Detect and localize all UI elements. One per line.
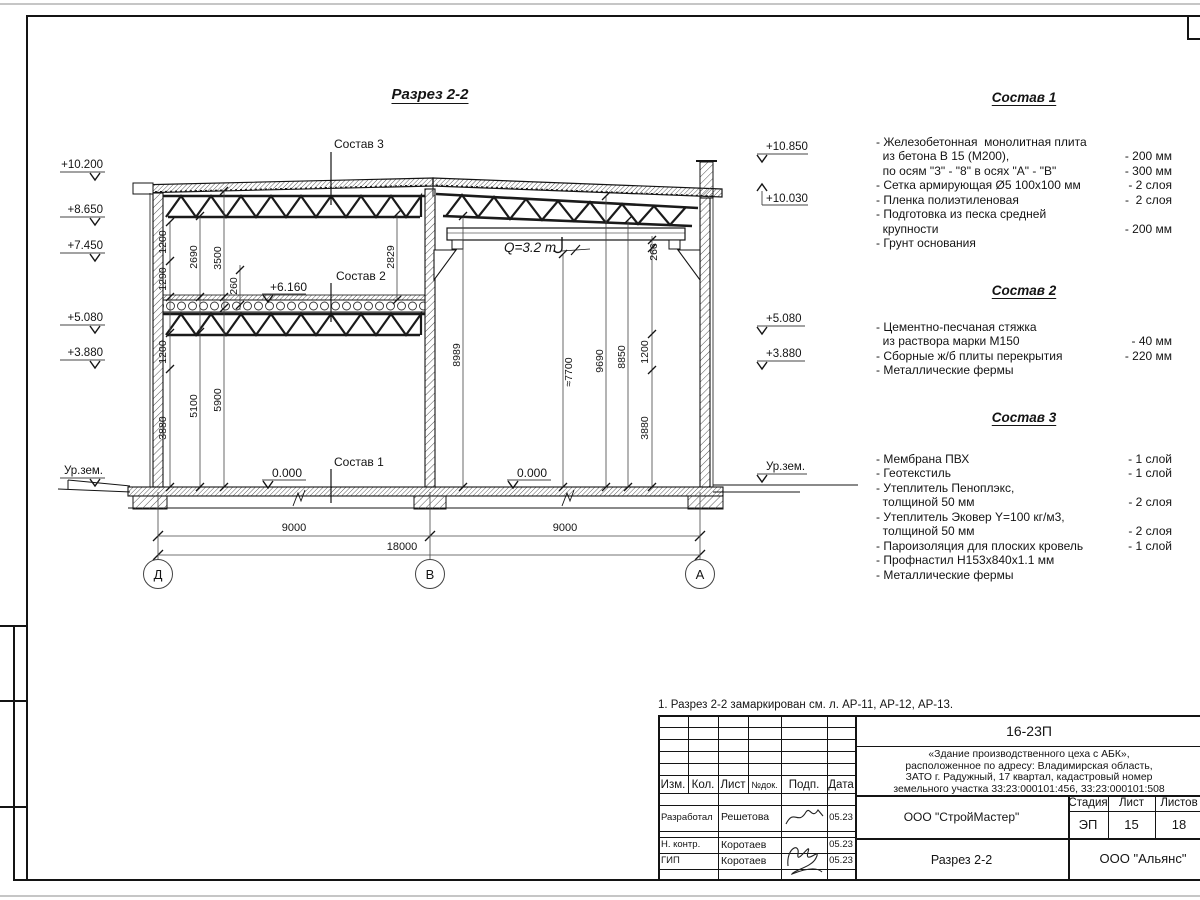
sheet-value: 15 (1108, 812, 1155, 838)
spec-item: - Металлические фермы (876, 568, 1172, 582)
spec-row: - Железобетонная монолитная плита (876, 135, 1172, 149)
spec-row: - Цементно-песчаная стяжка (876, 320, 1172, 334)
elev-left-0: +10.200 (61, 159, 103, 171)
project-description: «Здание производственного цеха с АБК», р… (858, 749, 1200, 795)
spec-row: толщиной 50 мм- 2 слоя (876, 495, 1172, 509)
spec-row: - Утеплитель Эковер Y=100 кг/м3, (876, 510, 1172, 524)
spec-qty: - 200 мм (1125, 149, 1172, 163)
spec-row: - Грунт основания (876, 236, 1172, 250)
axis-label-d: Д (154, 567, 163, 582)
dim-rb-3880: 3880 (639, 416, 651, 440)
dim-bottom-texts: 9000 9000 18000 (282, 522, 577, 553)
elev-right-2: +5.080 (766, 313, 802, 325)
spec-row: - Пленка полиэтиленовая- 2 слоя (876, 193, 1172, 207)
spec-qty: - 300 мм (1125, 164, 1172, 178)
dim-lb-1200-low: 1200 (157, 340, 169, 364)
spec-panel-3: Состав 3 - Мембрана ПВХ- 1 слой - Геотек… (876, 410, 1172, 582)
spec-row: - Металлические фермы (876, 568, 1172, 582)
dim-lb-3880: 3880 (157, 416, 169, 440)
customer-org: ООО "Альянс" (1068, 840, 1200, 879)
dim-lb-2829: 2829 (385, 245, 397, 269)
spec-item: - Геотекстиль (876, 466, 1128, 480)
dim-lb-5100: 5100 (188, 394, 200, 418)
dim-total: 18000 (387, 541, 418, 553)
spec-row: - Металлические фермы (876, 363, 1172, 377)
spec-qty: - 200 мм (1125, 222, 1172, 236)
crane-beam (434, 228, 700, 280)
title-block: Изм. Кол. Лист №док. Подп. Дата Разработ… (658, 715, 1200, 881)
elevation-marks-right: +10.850 +10.030 +5.080 +3.880 Ур.зем. (757, 141, 808, 482)
spec-qty: - 2 слоя (1128, 495, 1172, 509)
col-list: Лист (718, 777, 748, 793)
axis-label-v: В (426, 567, 435, 582)
spec-item: - Металлические фермы (876, 363, 1172, 377)
role-developer: Разработал (658, 806, 721, 830)
col-podp: Подп. (781, 777, 827, 793)
dim-lb-5900: 5900 (212, 388, 224, 412)
spec-qty: - 2 слоя (1125, 193, 1172, 207)
date-gip: 05.23 (827, 854, 855, 869)
col-data: Дата (827, 777, 855, 793)
spec-item: крупности (876, 222, 1125, 236)
elev-right-0: +10.850 (766, 141, 808, 153)
spec-row: - Подготовка из песка средней (876, 207, 1172, 221)
stage-value: ЭП (1068, 812, 1108, 838)
spec-qty: - 2 слоя (1128, 524, 1172, 538)
signature-ncontrol-gip (782, 836, 826, 878)
label-crane-capacity: Q=3.2 т (504, 240, 556, 255)
dim-rb-1200: 1200 (639, 340, 651, 364)
date-ncontrol: 05.23 (827, 838, 855, 853)
sheets-label: Листов (1155, 795, 1200, 811)
elev-left-1: +8.650 (68, 204, 104, 216)
spec-row: - Сетка армирующая Ø5 100х100 мм- 2 слоя (876, 178, 1172, 192)
spec-row: - Утеплитель Пеноплэкс, (876, 481, 1172, 495)
dim-span-left: 9000 (282, 522, 306, 534)
dim-rb-8989: 8989 (451, 343, 463, 367)
spec-item: - Мембрана ПВХ (876, 452, 1128, 466)
elev-right-1: +10.030 (766, 193, 808, 205)
spec-item: - Утеплитель Эковер Y=100 кг/м3, (876, 510, 1172, 524)
role-gip: ГИП (658, 854, 721, 869)
truss-right (436, 194, 698, 226)
spec-panel-2: Состав 2 - Цементно-песчаная стяжка из р… (876, 283, 1172, 378)
spec-item: - Сетка армирующая Ø5 100х100 мм (876, 178, 1128, 192)
spec-qty: - 220 мм (1125, 349, 1172, 363)
dim-rb-266: 266 (648, 243, 660, 261)
spec-item: из бетона В 15 (М200), (876, 149, 1125, 163)
spec-item: по осям "3" - "8" в осях "А" - "В" (876, 164, 1125, 178)
ground (58, 480, 858, 509)
project-line: земельного участка 33:23:000101:456, 33:… (858, 784, 1200, 796)
dim-lb-3500: 3500 (212, 246, 224, 270)
drawing-sheet: Разрез 2-2 (0, 0, 1200, 900)
project-line: ЗАТО г. Радужный, 17 квартал, кадастровы… (858, 772, 1200, 784)
spec-qty: - 1 слой (1128, 452, 1172, 466)
spec-item: толщиной 50 мм (876, 495, 1128, 509)
label-zero-left: 0.000 (272, 466, 302, 480)
name-ncontrol: Коротаев (718, 838, 784, 853)
spec-qty: - 1 слой (1128, 466, 1172, 480)
dim-rb-7700: ≈7700 (563, 357, 575, 386)
sheets-value: 18 (1155, 812, 1200, 838)
spec-row: - Профнастил Н153х840х1.1 мм (876, 553, 1172, 567)
dim-rb-9690: 9690 (594, 349, 606, 373)
spec-item: - Сборные ж/б плиты перекрытия (876, 349, 1125, 363)
spec-item: - Профнастил Н153х840х1.1 мм (876, 553, 1172, 567)
col-izm: Изм. (658, 777, 688, 793)
dim-lb-2690: 2690 (188, 245, 200, 269)
axis-bubbles: Д В А (144, 560, 715, 589)
name-developer: Решетова (718, 806, 784, 830)
spec-item: - Пароизоляция для плоских кровель (876, 539, 1128, 553)
spec-row: - Пароизоляция для плоских кровель- 1 сл… (876, 539, 1172, 553)
spec-item: толщиной 50 мм (876, 524, 1128, 538)
doc-number: 16-23П (855, 720, 1200, 744)
dim-lb-1200-top: 1200 (157, 230, 169, 254)
spec-item: - Пленка полиэтиленовая (876, 193, 1125, 207)
elevation-marks-left: +10.200 +8.650 +7.450 +5.080 +3.880 Ур.з… (60, 159, 105, 486)
elev-right-ground: Ур.зем. (766, 461, 805, 473)
sheet-note: 1. Разрез 2-2 замаркирован см. л. АР-11,… (658, 699, 953, 711)
design-org: ООО "СтройМастер" (855, 797, 1068, 838)
label-zero-right: 0.000 (517, 466, 547, 480)
stage-label: Стадия (1068, 795, 1108, 811)
label-sostav3: Состав 3 (334, 137, 384, 151)
spec-item: - Грунт основания (876, 236, 1172, 250)
role-ncontrol: Н. контр. (658, 838, 721, 853)
label-sostav2: Состав 2 (336, 269, 386, 283)
spec-row: из бетона В 15 (М200),- 200 мм (876, 149, 1172, 163)
drawing-name: Разрез 2-2 (855, 840, 1068, 879)
spec-item: - Утеплитель Пеноплэкс, (876, 481, 1172, 495)
date-developer: 05.23 (827, 806, 855, 830)
project-line: расположенное по адресу: Владимирская об… (858, 761, 1200, 773)
spec-item: из раствора марки М150 (876, 334, 1131, 348)
spec-panel-1: Состав 1 - Железобетонная монолитная пли… (876, 90, 1172, 251)
spec-row: из раствора марки М150- 40 мм (876, 334, 1172, 348)
elev-left-ground: Ур.зем. (64, 465, 103, 477)
dim-lb-1290: 1290 (157, 267, 169, 291)
elev-left-3: +5.080 (68, 312, 104, 324)
spec-1-title: Состав 1 (876, 90, 1172, 105)
col-kol: Кол. (688, 777, 718, 793)
spec-row: по осям "3" - "8" в осях "А" - "В"- 300 … (876, 164, 1172, 178)
spec-row: - Геотекстиль- 1 слой (876, 466, 1172, 480)
spec-qty: - 2 слоя (1128, 178, 1172, 192)
dim-span-right: 9000 (553, 522, 577, 534)
spec-item: - Железобетонная монолитная плита (876, 135, 1172, 149)
col-ndoc: №док. (748, 777, 781, 793)
spec-row: - Мембрана ПВХ- 1 слой (876, 452, 1172, 466)
floor-slab (163, 295, 425, 312)
dim-rb-8850: 8850 (616, 345, 628, 369)
label-sostav1: Состав 1 (334, 455, 384, 469)
label-6160: +6.160 (270, 280, 307, 294)
spec-3-title: Состав 3 (876, 410, 1172, 425)
spec-qty: - 40 мм (1131, 334, 1172, 348)
truss-lower-left (163, 314, 425, 335)
sheet-label: Лист (1108, 795, 1155, 811)
spec-2-title: Состав 2 (876, 283, 1172, 298)
spec-row: крупности- 200 мм (876, 222, 1172, 236)
axis-label-a: А (696, 567, 705, 582)
elev-right-3: +3.880 (766, 348, 802, 360)
name-gip: Коротаев (718, 854, 784, 869)
dim-lb-260: 260 (228, 277, 240, 295)
spec-qty: - 1 слой (1128, 539, 1172, 553)
spec-item: - Подготовка из песка средней (876, 207, 1172, 221)
spec-row: - Сборные ж/б плиты перекрытия- 220 мм (876, 349, 1172, 363)
signature-developer (782, 804, 826, 832)
spec-item: - Цементно-песчаная стяжка (876, 320, 1172, 334)
elev-left-2: +7.450 (68, 240, 104, 252)
project-line: «Здание производственного цеха с АБК», (858, 749, 1200, 761)
spec-row: толщиной 50 мм- 2 слоя (876, 524, 1172, 538)
elev-left-4: +3.880 (68, 347, 104, 359)
